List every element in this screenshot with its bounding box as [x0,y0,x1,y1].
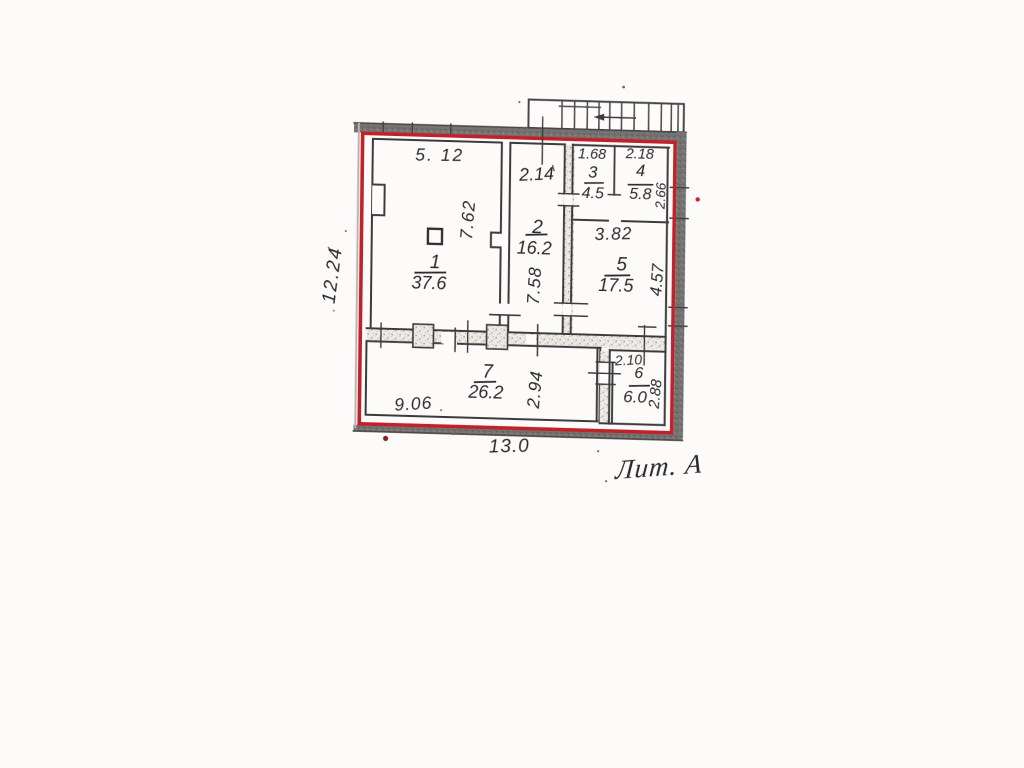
svg-text:5. 12: 5. 12 [415,145,464,166]
svg-text:9.06: 9.06 [394,393,433,415]
svg-text:17.5: 17.5 [598,275,634,296]
svg-text:2.14: 2.14 [517,163,554,184]
svg-text:5.8: 5.8 [629,186,652,204]
svg-text:2.18: 2.18 [625,146,654,163]
svg-text:26.2: 26.2 [467,381,503,402]
svg-text:3.82: 3.82 [594,223,633,244]
svg-text:37.6: 37.6 [411,273,447,294]
svg-text:1.68: 1.68 [578,146,606,163]
svg-text:6.0: 6.0 [623,387,647,407]
svg-text:7.58: 7.58 [523,266,545,306]
svg-text:2.94: 2.94 [523,369,547,410]
svg-text:4: 4 [636,162,645,180]
svg-text:7: 7 [482,361,494,382]
svg-text:16.2: 16.2 [517,238,552,259]
svg-text:13.0: 13.0 [488,436,530,458]
svg-text:3: 3 [588,163,598,181]
svg-text:1: 1 [430,252,441,273]
svg-text:7.62: 7.62 [456,199,479,241]
svg-text:4.57: 4.57 [647,262,668,297]
svg-text:2.88: 2.88 [646,378,666,411]
svg-text:5: 5 [616,255,627,276]
svg-text:6: 6 [634,365,643,382]
svg-text:4.5: 4.5 [582,185,605,203]
